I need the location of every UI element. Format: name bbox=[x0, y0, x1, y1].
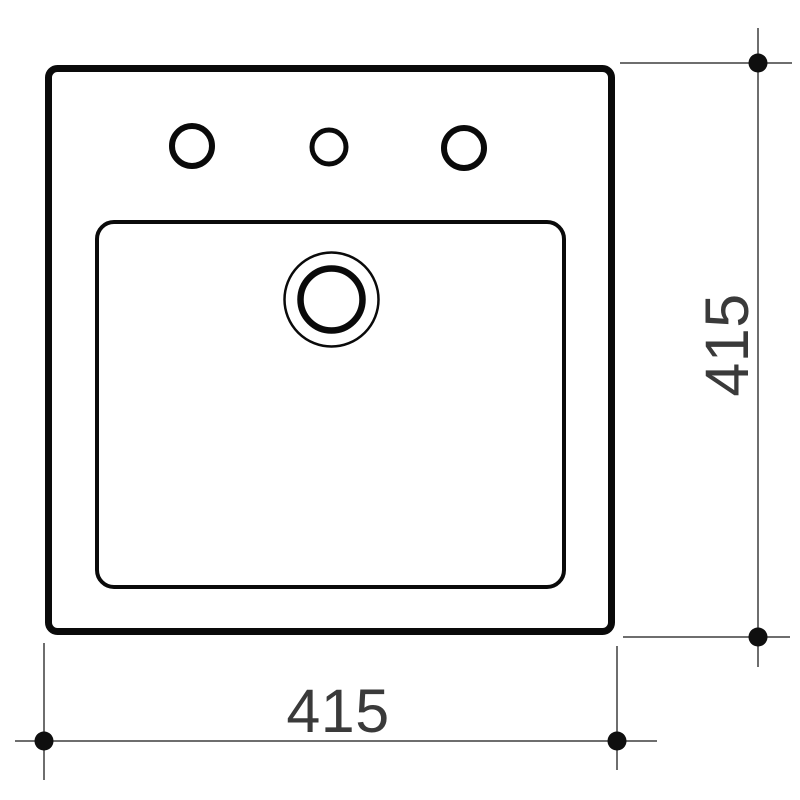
basin-bowl bbox=[97, 222, 564, 587]
basin-outer-rim bbox=[49, 69, 612, 632]
tap-hole-right-icon bbox=[444, 128, 484, 168]
tap-hole-center-icon bbox=[312, 130, 346, 164]
dimension-labels-group: 415 415 bbox=[286, 293, 761, 745]
waste-outlet-inner-ring bbox=[301, 269, 363, 331]
basin-outline-group bbox=[49, 69, 612, 632]
drawing-canvas: 415 415 bbox=[0, 0, 800, 800]
width-dimension-label: 415 bbox=[286, 677, 389, 745]
dimension-dot-top-right bbox=[749, 54, 768, 73]
tap-hole-left-icon bbox=[172, 126, 212, 166]
height-dimension-label: 415 bbox=[693, 293, 761, 396]
dimension-dot-bottom-left bbox=[35, 732, 54, 751]
dimension-lines-group bbox=[15, 28, 792, 780]
dimension-dot-bottom-right-horizontal bbox=[608, 732, 627, 751]
dimension-dot-bottom-right-vertical bbox=[749, 628, 768, 647]
dimension-dots-group bbox=[35, 54, 768, 751]
basin-technical-drawing: 415 415 bbox=[0, 0, 800, 800]
